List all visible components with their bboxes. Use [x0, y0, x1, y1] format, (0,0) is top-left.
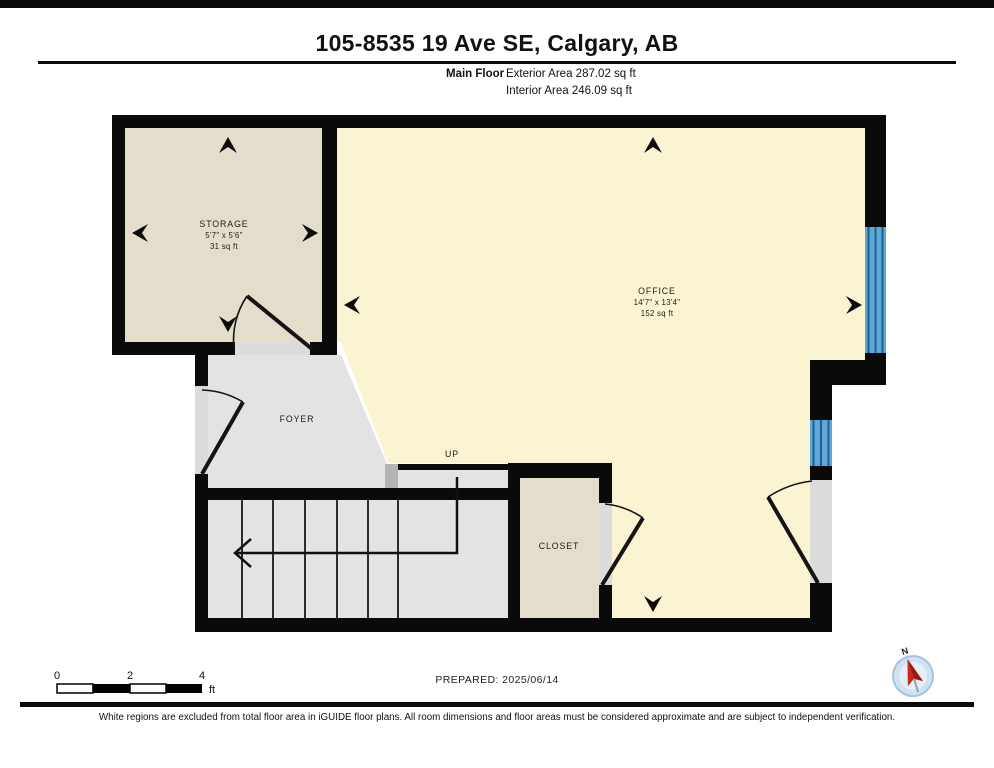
disclaimer-text: White regions are excluded from total fl…	[0, 712, 994, 723]
wall-segment	[810, 385, 832, 420]
storage-door-opening	[235, 342, 310, 355]
wall-segment	[865, 115, 886, 227]
wall-segment	[112, 115, 125, 355]
floor-plan-page: 105-8535 19 Ave SE, Calgary, AB Main Flo…	[0, 0, 994, 768]
office-dims: 14'7" x 13'4"	[634, 298, 681, 307]
compass-north-label: N	[900, 646, 909, 658]
floor-plan-canvas: STORAGE 5'7" x 5'6" 31 sq ft OFFICE 14'7…	[0, 0, 994, 768]
office-label: OFFICE	[638, 286, 676, 296]
storage-dims: 5'7" x 5'6"	[205, 231, 242, 240]
wall-segment	[195, 618, 832, 632]
stair-step	[385, 464, 398, 488]
storage-area: 31 sq ft	[210, 242, 239, 251]
office-area: 152 sq ft	[641, 309, 674, 318]
wall-segment	[195, 488, 510, 500]
stair-landing-strip	[398, 470, 508, 488]
entry-door-opening	[195, 386, 208, 474]
compass-icon: N	[884, 640, 938, 701]
foyer-label: FOYER	[280, 414, 315, 424]
wall-segment	[810, 583, 832, 632]
stairs-up-label: UP	[445, 449, 459, 459]
storage-label: STORAGE	[199, 219, 248, 229]
wall-segment	[599, 585, 612, 618]
wall-segment	[810, 360, 886, 385]
prepared-date: PREPARED: 2025/06/14	[0, 674, 994, 686]
wall-segment	[508, 463, 520, 618]
room-fills	[125, 128, 865, 618]
footer-divider	[20, 702, 974, 707]
wall-segment	[195, 342, 208, 386]
wall-segment	[112, 342, 235, 355]
window-lower	[810, 420, 832, 466]
wall-segment	[112, 115, 886, 128]
wall-segment	[398, 464, 510, 470]
closet-label: CLOSET	[539, 541, 580, 551]
office-door-opening	[810, 480, 832, 583]
wall-segment	[508, 463, 612, 478]
window-upper	[865, 227, 886, 353]
stairwell-floor	[208, 500, 508, 618]
wall-segment	[322, 115, 337, 355]
wall-segment	[599, 463, 612, 503]
wall-segment	[810, 466, 832, 480]
